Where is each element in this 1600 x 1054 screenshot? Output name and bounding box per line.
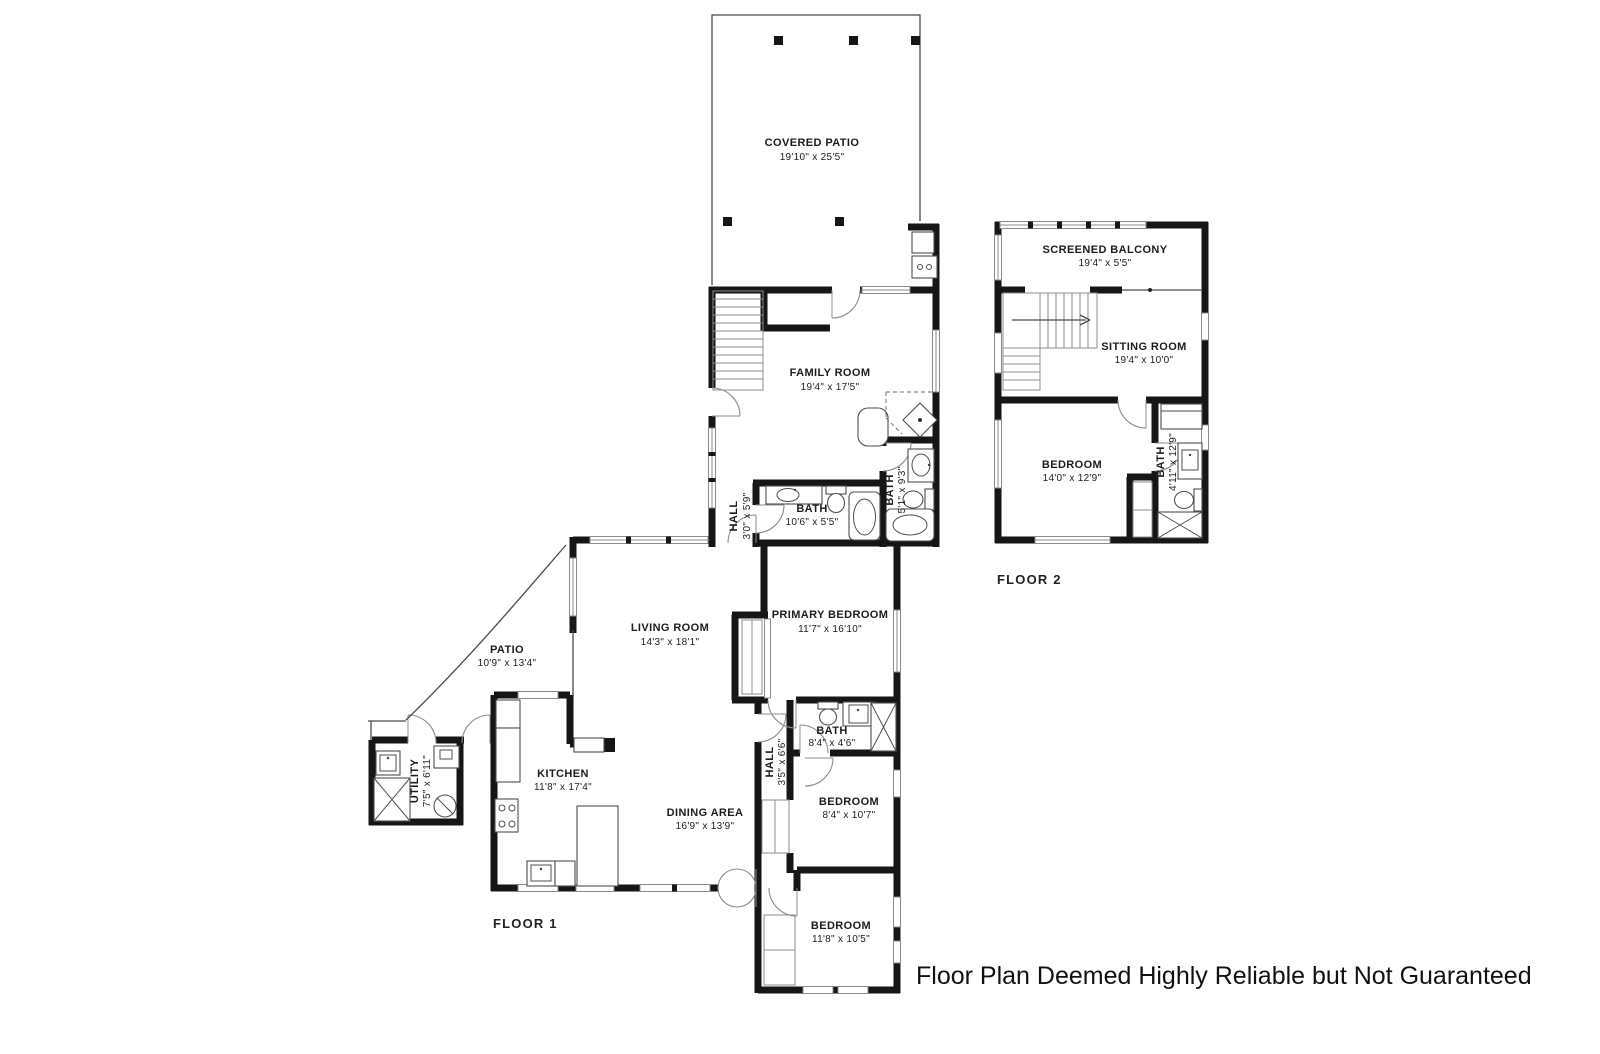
toilet-fixture — [818, 702, 838, 725]
kitchen-label: KITCHEN — [537, 768, 589, 780]
patio-edge — [368, 545, 566, 740]
bathtub-fixture — [886, 509, 934, 541]
window — [995, 235, 1002, 280]
window — [590, 537, 708, 544]
bath-f2-label: BATH — [1155, 446, 1167, 477]
floor1-windows — [518, 287, 940, 994]
utility-sink — [376, 751, 400, 775]
window — [894, 941, 901, 963]
window — [709, 428, 716, 508]
sitting-room-dims: 19'4" x 10'0" — [1115, 355, 1174, 366]
refrigerator — [496, 700, 520, 728]
hall1-label: HALL — [728, 501, 740, 532]
window — [1035, 537, 1110, 544]
kitchen-dims: 11'8" x 17'4" — [534, 782, 592, 793]
hall2-label: HALL — [764, 747, 776, 778]
bathroom-vanity — [1178, 443, 1202, 479]
fireplace — [886, 392, 937, 437]
window — [1202, 313, 1209, 340]
closet — [762, 800, 789, 853]
window — [933, 330, 940, 392]
window — [1202, 425, 1209, 450]
door-arc — [462, 715, 490, 743]
window — [894, 610, 901, 672]
hall1-dims: 3'0" x 5'9" — [742, 492, 753, 539]
bedroom-bottom-dims: 11'8" x 10'5" — [812, 934, 870, 945]
balcony-railing — [1122, 288, 1202, 292]
patio-dims: 10'9" x 13'4" — [478, 658, 537, 669]
patio-post — [774, 36, 783, 45]
patio-post — [849, 36, 858, 45]
closet — [764, 915, 795, 985]
window — [995, 420, 1002, 488]
utility-dims: 7'5" x 6'11" — [422, 755, 433, 807]
utility-label: UTILITY — [409, 759, 421, 804]
window — [995, 333, 1002, 373]
window — [570, 558, 577, 616]
hall2-dims: 3'5" x 6'6" — [777, 738, 788, 785]
door-arc — [1118, 400, 1146, 428]
window — [862, 287, 910, 294]
door-arc — [712, 388, 740, 416]
toilet-fixture — [826, 486, 846, 513]
bedroom-mid-label: BEDROOM — [819, 796, 879, 808]
kitchen-counter — [496, 728, 520, 782]
kitchen-peninsula — [574, 738, 604, 752]
window — [518, 692, 558, 699]
dining-area-label: DINING AREA — [667, 807, 744, 819]
double-door-arc — [718, 869, 756, 907]
screened-balcony-dims: 19'4" x 5'5" — [1079, 258, 1132, 269]
shower-fixture — [871, 703, 896, 751]
primary-bedroom-label: PRIMARY BEDROOM — [772, 609, 889, 621]
floor-plan-page: COVERED PATIO 19'10" x 25'5" FAMILY ROOM… — [0, 0, 1600, 1054]
window — [894, 897, 901, 927]
floor-plan-canvas: COVERED PATIO 19'10" x 25'5" FAMILY ROOM… — [0, 0, 1600, 1054]
kitchen-counter — [555, 861, 575, 886]
family-room-label: FAMILY ROOM — [790, 367, 871, 379]
bedroom-mid-dims: 8'4" x 10'7" — [823, 810, 876, 821]
closet — [742, 620, 762, 694]
stove-fixture — [495, 799, 518, 832]
floor1-label: FLOOR 1 — [493, 916, 558, 931]
patio-post — [723, 217, 732, 226]
primary-bedroom-dims: 11'7" x 16'10" — [798, 624, 862, 635]
patio-post — [911, 36, 920, 45]
living-room-dims: 14'3" x 18'1" — [641, 637, 700, 648]
kitchen-sink — [527, 861, 555, 886]
window — [1000, 222, 1146, 229]
floor2-stairs — [1003, 293, 1097, 390]
bath-main-label: BATH — [796, 503, 827, 515]
bathroom-vanity — [908, 449, 934, 482]
door-arc — [756, 505, 784, 533]
toilet-fixture — [1175, 489, 1203, 511]
window — [894, 770, 901, 797]
bath-hall-dims: 8'4" x 4'6" — [808, 738, 855, 749]
floor1-stairs — [713, 291, 763, 390]
bath-f2-dims: 4'11" x 12'9" — [1168, 433, 1179, 491]
washer-fixture — [434, 795, 456, 817]
disclaimer-text: Floor Plan Deemed Highly Reliable but No… — [916, 962, 1532, 990]
kitchen-island — [577, 806, 618, 886]
dining-area-dims: 16'9" x 13'9" — [676, 821, 735, 832]
shower-fixture — [374, 778, 410, 821]
closet-sliding-door — [765, 619, 771, 698]
bedroom-bottom-label: BEDROOM — [811, 920, 871, 932]
floor2-label: FLOOR 2 — [997, 572, 1062, 587]
covered-patio-dims: 19'10" x 25'5" — [780, 152, 845, 163]
covered-patio-label: COVERED PATIO — [765, 137, 860, 149]
bathtub-fixture — [849, 492, 880, 540]
bath-main-dims: 10'6" x 5'5" — [786, 517, 839, 528]
family-room-dims: 19'4" x 17'5" — [801, 382, 860, 393]
bath-family-label: BATH — [884, 474, 896, 505]
door-arc — [805, 758, 833, 786]
patio-label: PATIO — [490, 644, 524, 656]
door-arc — [758, 714, 786, 742]
bedroom-f2-label: BEDROOM — [1042, 459, 1102, 471]
bathroom-vanity — [766, 486, 822, 504]
door-arc — [769, 888, 797, 916]
bathroom-vanity — [843, 702, 875, 726]
door-arc — [832, 290, 860, 318]
patio-post — [835, 217, 844, 226]
bath-family-dims: 5'1" x 9'3" — [897, 466, 908, 513]
covered-patio — [712, 15, 920, 285]
bedroom-f2-dims: 14'0" x 12'9" — [1043, 473, 1102, 484]
floor2-plan: SCREENED BALCONY 19'4" x 5'5" SITTING RO… — [995, 222, 1209, 588]
door-arc — [408, 715, 436, 743]
living-room-label: LIVING ROOM — [631, 622, 709, 634]
screened-balcony-label: SCREENED BALCONY — [1043, 244, 1168, 256]
bath-hall-label: BATH — [816, 725, 847, 737]
shower-fixture — [1158, 512, 1202, 538]
closet — [1133, 482, 1152, 537]
sitting-room-label: SITTING ROOM — [1101, 341, 1186, 353]
armchair — [858, 408, 888, 446]
bathroom-counter — [1161, 404, 1202, 429]
utility-vanity — [434, 746, 459, 768]
